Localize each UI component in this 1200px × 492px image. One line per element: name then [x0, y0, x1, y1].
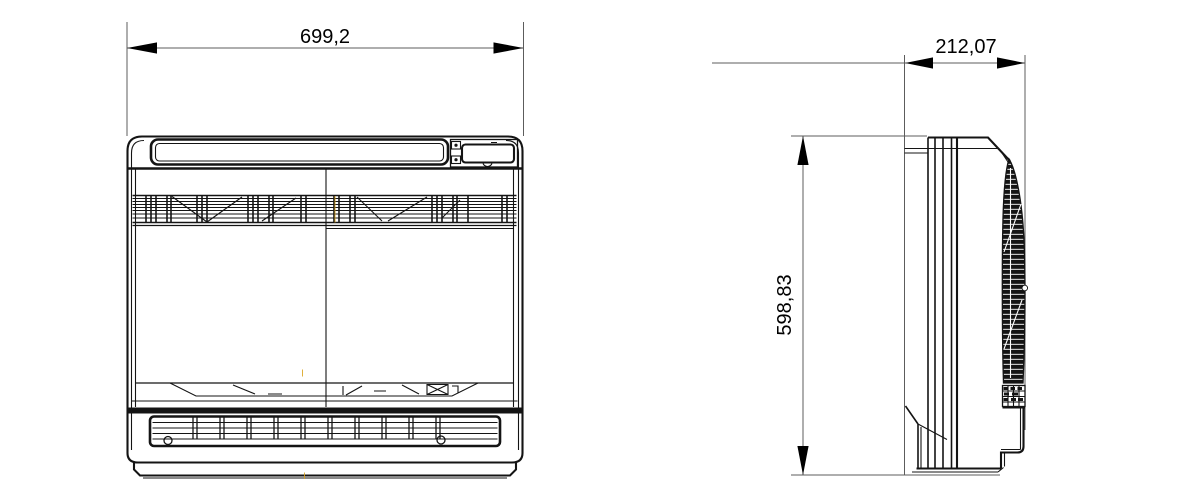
- technical-drawing: 699,2: [0, 0, 1200, 492]
- control-panel: [451, 140, 518, 168]
- arrowhead-left-icon: [905, 57, 933, 68]
- front-view: 699,2: [127, 22, 524, 479]
- depth-dimension-label: 212,07: [935, 36, 996, 58]
- front-body-outline: [128, 137, 523, 479]
- grid-block-fills: [1004, 387, 1024, 401]
- outlet-louver-marks: [233, 385, 458, 395]
- display-window: [462, 145, 514, 163]
- width-dimension-label: 699,2: [300, 26, 350, 48]
- depth-dimension: 212,07: [712, 36, 1025, 475]
- lower-outlet: [127, 370, 524, 414]
- bottom-grille: [150, 417, 500, 480]
- arrowhead-left-icon: [127, 42, 157, 53]
- top-flap: [151, 140, 448, 165]
- screw-dot-icon: [454, 144, 457, 147]
- louver-band: [1002, 159, 1025, 383]
- height-dimension-lines: [791, 136, 1000, 475]
- arrowhead-right-icon: [997, 57, 1025, 68]
- depth-dimension-lines: [712, 55, 1025, 475]
- width-dimension: 699,2: [127, 22, 524, 136]
- arrowhead-right-icon: [494, 42, 524, 53]
- outlet-cross-box: [427, 385, 448, 395]
- side-view: 212,07 598,83: [712, 36, 1028, 475]
- back-panel-lines: [928, 138, 957, 469]
- front-louver: [1002, 159, 1027, 383]
- screw-dot-icon: [454, 158, 457, 161]
- upper-grille: [133, 196, 517, 223]
- arrowhead-up-icon: [797, 136, 808, 165]
- arrowhead-down-icon: [797, 446, 808, 475]
- screw-icon: [164, 437, 172, 445]
- screw-icon: [437, 436, 445, 444]
- outlet-bold-band: [127, 408, 524, 414]
- height-dimension-label: 598,83: [774, 274, 796, 335]
- louver-grid-block: [1003, 386, 1026, 408]
- technical-drawing-canvas: 699,2: [0, 0, 1200, 492]
- base-plinth: [134, 463, 516, 476]
- height-dimension: 598,83: [774, 136, 1000, 475]
- bottom-bracket: [906, 406, 948, 469]
- louver-notch: [1022, 285, 1028, 291]
